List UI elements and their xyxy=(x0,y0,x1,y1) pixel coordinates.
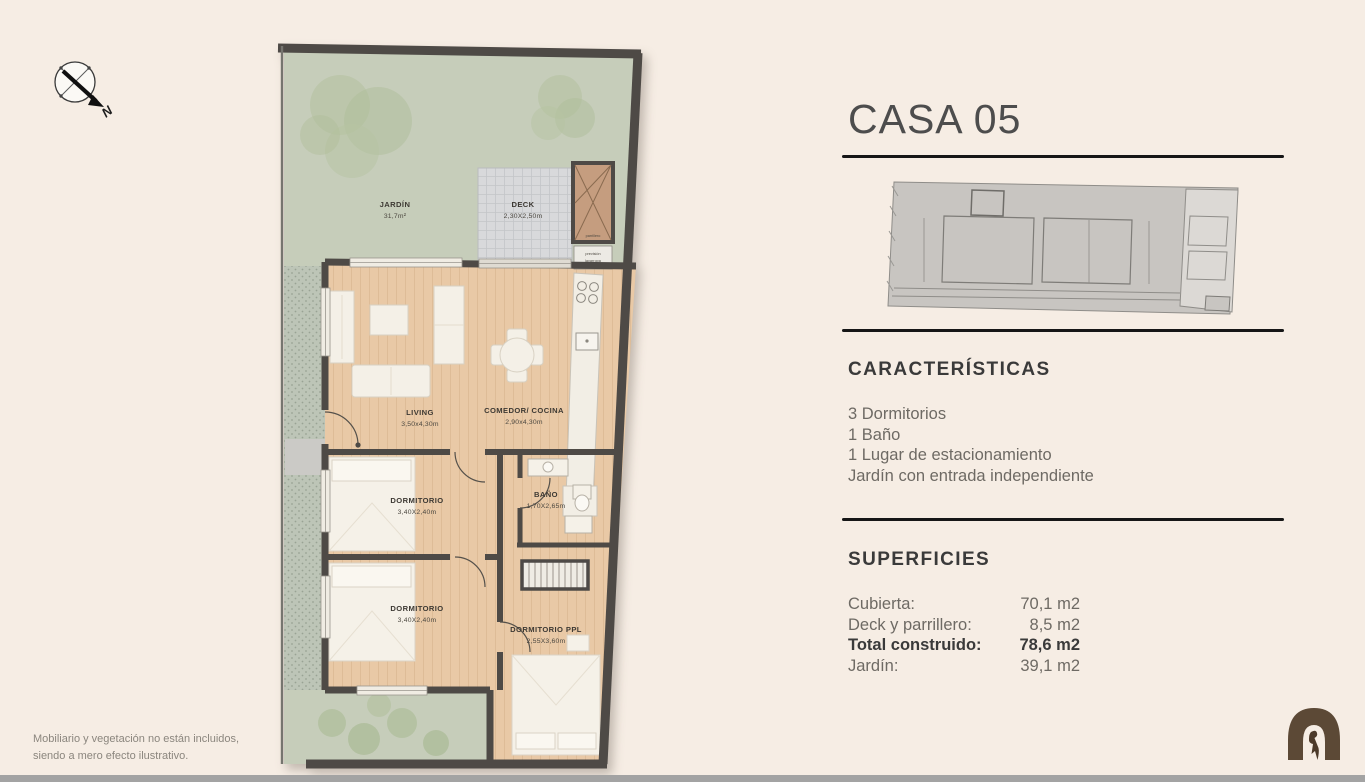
living-dims: 3,50x4,30m xyxy=(401,421,439,428)
superficies-heading: SUPERFICIES xyxy=(848,549,990,571)
dormitorio-ppl-label: DORMITORIO PPL xyxy=(510,625,582,634)
bano-label: BAÑO xyxy=(534,490,558,499)
dormitorio1-dims: 3,40X2,40m xyxy=(398,509,437,516)
feature-item: 3 Dormitorios xyxy=(848,404,1268,425)
disclaimer-line: Mobiliario y vegetación no están incluid… xyxy=(33,731,239,748)
dormitorio-ppl-dims: 2,55X3,60m xyxy=(527,638,566,645)
surface-value: 39,1 m2 xyxy=(1008,656,1080,677)
surface-label: Deck y parrillero: xyxy=(848,615,1008,636)
jardin-area: 31,7m² xyxy=(384,213,407,220)
comedor-label: COMEDOR/ COCINA xyxy=(484,406,564,415)
living-label: LIVING xyxy=(406,408,434,417)
surface-value: 70,1 m2 xyxy=(1008,594,1080,615)
site-plan-minimap xyxy=(884,176,1246,320)
dormitorio2-dims: 3,40X2,40m xyxy=(398,617,437,624)
parrillero-grill: parrillero xyxy=(573,163,613,242)
parrillero-label: parrillero xyxy=(586,234,601,238)
superficies-table: Cubierta: 70,1 m2 Deck y parrillero: 8,5… xyxy=(848,594,1148,676)
deck-label: DECK xyxy=(511,200,534,209)
arch-bird-logo-icon xyxy=(1278,698,1350,776)
surface-label: Total construido: xyxy=(848,635,1008,656)
laundry-label-line1: previsión xyxy=(585,252,600,256)
divider-line xyxy=(842,155,1284,158)
dormitorio1-label: DORMITORIO xyxy=(390,496,443,505)
dormitorio2-label: DORMITORIO xyxy=(390,604,443,613)
disclaimer-text: Mobiliario y vegetación no están incluid… xyxy=(33,731,239,765)
surface-label: Cubierta: xyxy=(848,594,1008,615)
disclaimer-line: siendo a mero efecto ilustrativo. xyxy=(33,748,239,765)
feature-item: 1 Baño xyxy=(848,425,1268,446)
divider-line xyxy=(842,518,1284,521)
info-panel: CASA 05 CARACTERÍSTICAS 3 Dormitorios 1 … xyxy=(842,0,1286,782)
bottom-bar xyxy=(0,775,1365,782)
table-row: Deck y parrillero: 8,5 m2 xyxy=(848,615,1148,636)
deck-dims: 2,30X2,50m xyxy=(504,213,543,220)
table-row: Jardín: 39,1 m2 xyxy=(848,656,1148,677)
surface-label: Jardín: xyxy=(848,656,1008,677)
comedor-dims: 2,90x4,30m xyxy=(505,419,543,426)
page-title: CASA 05 xyxy=(848,96,1021,143)
feature-item: 1 Lugar de estacionamiento xyxy=(848,445,1268,466)
table-row: Cubierta: 70,1 m2 xyxy=(848,594,1148,615)
table-row-total: Total construido: 78,6 m2 xyxy=(848,635,1148,656)
surface-value: 78,6 m2 xyxy=(1008,635,1080,656)
closet-louver xyxy=(522,561,588,589)
floor-plan: parrillero previsión lavarropa xyxy=(262,33,652,775)
divider-line xyxy=(842,329,1284,332)
feature-item: Jardín con entrada independiente xyxy=(848,466,1268,487)
entry-path xyxy=(285,439,325,475)
caracteristicas-heading: CARACTERÍSTICAS xyxy=(848,359,1051,381)
bano-dims: 1,70X2,65m xyxy=(527,503,566,510)
jardin-label: JARDÍN xyxy=(380,200,411,209)
compass-icon: N xyxy=(30,42,125,134)
caracteristicas-list: 3 Dormitorios 1 Baño 1 Lugar de estacion… xyxy=(848,404,1268,486)
surface-value: 8,5 m2 xyxy=(1008,615,1080,636)
